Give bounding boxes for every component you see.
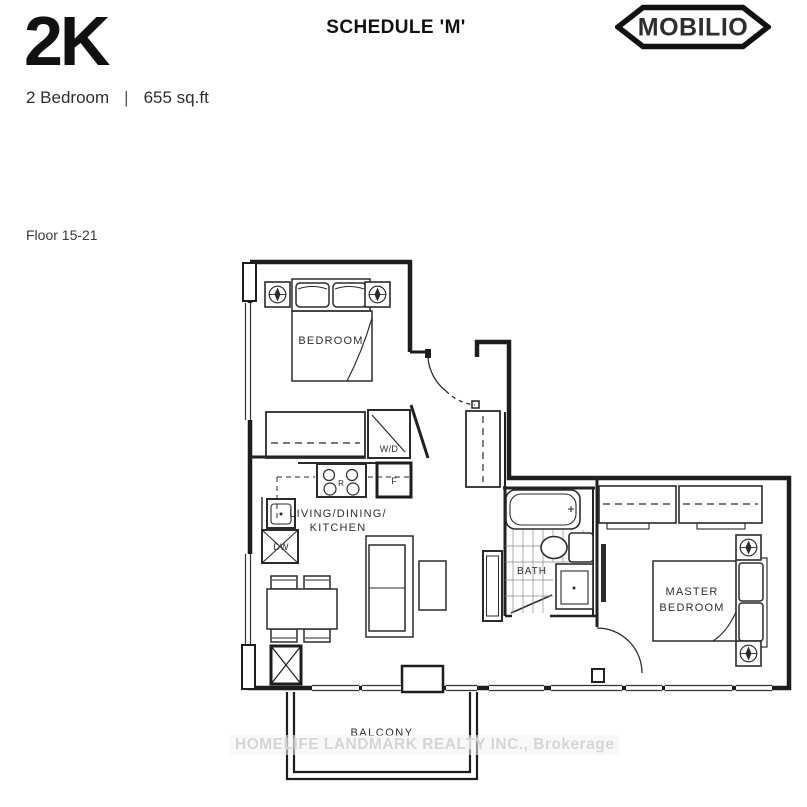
entry-door-arc-solid <box>428 358 446 391</box>
bedroom-furniture <box>292 279 372 381</box>
wall-corner-block-top <box>243 263 256 301</box>
bedroom-closet <box>266 412 365 458</box>
bedroom-fixture-icon-left <box>265 282 290 307</box>
wall-corner-block-bottom <box>242 645 255 689</box>
sofa <box>366 536 413 637</box>
entry-closet <box>466 411 500 487</box>
dishwasher-label: DW <box>274 542 289 552</box>
window-mullion-block <box>402 666 443 692</box>
toilet <box>541 533 593 562</box>
living-label-line2: KITCHEN <box>310 522 367 534</box>
bath-door-leaf <box>511 595 552 613</box>
bedroom-label: BEDROOM <box>298 335 363 347</box>
master-tv <box>601 544 606 602</box>
bedroom-fixture-icon-right <box>365 282 390 307</box>
dining-set <box>267 576 337 642</box>
master-closet <box>599 486 762 529</box>
brokerage-watermark: HOMELIFE LANDMARK REALTY INC., Brokerage <box>230 735 619 755</box>
coffee-table <box>419 561 446 610</box>
range-label: R <box>338 479 344 488</box>
living-label-line1: LIVING/DINING/ <box>289 508 386 520</box>
bathtub <box>506 490 580 529</box>
structural-column <box>271 646 301 684</box>
bath-vanity <box>556 564 593 609</box>
hall-cabinet <box>483 551 502 621</box>
master-label-line1: MASTER <box>665 586 718 598</box>
master-label-line2: BEDROOM <box>659 602 724 614</box>
entry-door-jamb <box>425 349 431 358</box>
fridge-label: F <box>391 476 397 486</box>
master-fixture-icon-bottom <box>736 641 761 666</box>
entry-arc-end-jamb <box>472 401 479 408</box>
entry-door-arc-dashed <box>446 391 475 405</box>
floor-plan-sheet: 2K SCHEDULE 'M' MOBILIO 2 Bedroom|655 sq… <box>0 0 807 807</box>
master-door-jamb <box>592 669 604 682</box>
floor-plan-drawing: BEDROOM W/D R <box>0 0 807 807</box>
master-door-arc <box>597 628 642 673</box>
washer-dryer-label: W/D <box>380 444 399 454</box>
master-fixture-icon-top <box>736 535 761 560</box>
bath-label: BATH <box>517 566 547 577</box>
